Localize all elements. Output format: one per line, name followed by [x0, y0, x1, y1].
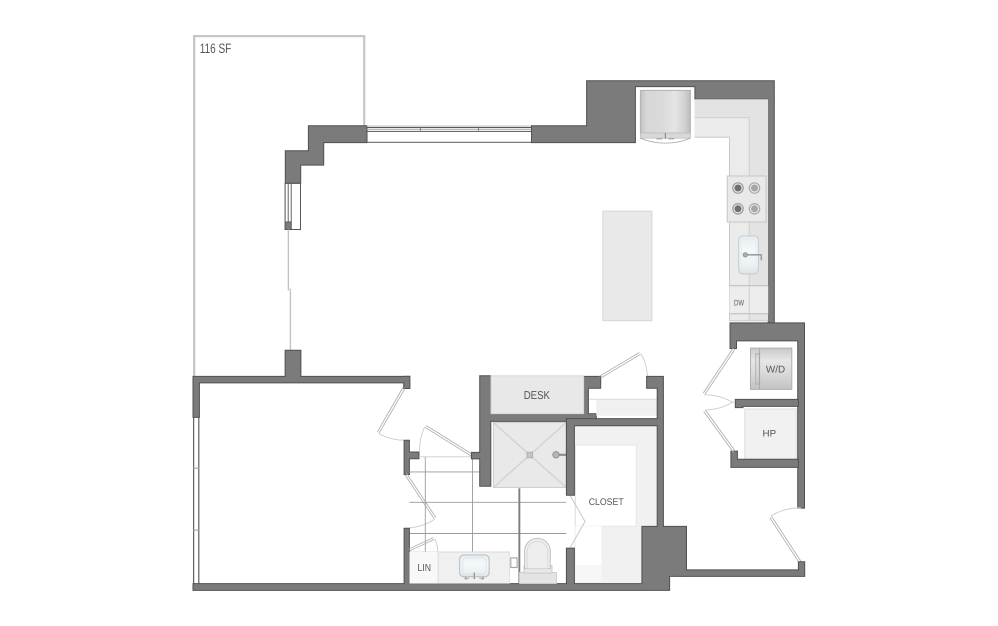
- svg-text:116 SF: 116 SF: [200, 41, 232, 56]
- svg-text:LIN: LIN: [418, 563, 432, 574]
- svg-text:DESK: DESK: [524, 390, 551, 402]
- svg-text:W/D: W/D: [766, 365, 785, 376]
- svg-text:HP: HP: [763, 427, 777, 438]
- svg-text:DW: DW: [734, 299, 744, 308]
- svg-text:CLOSET: CLOSET: [589, 497, 624, 508]
